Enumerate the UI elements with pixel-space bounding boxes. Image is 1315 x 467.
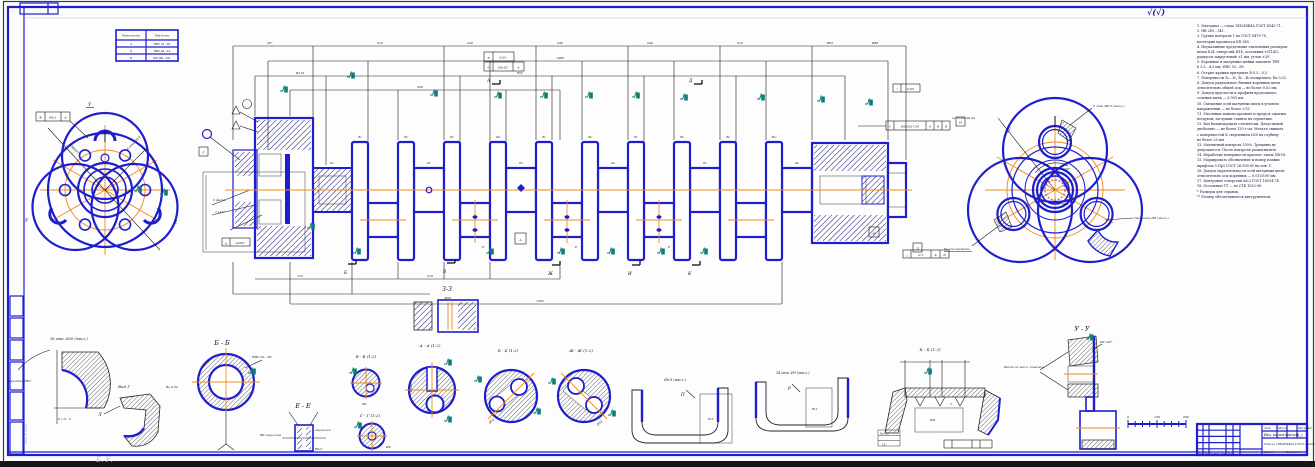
svg-text:210: 210 xyxy=(736,41,743,45)
center-mark-box: А xyxy=(518,238,522,242)
svg-text:⊥: ⊥ xyxy=(906,253,909,257)
section-bb: Б - Б HRC 52…58 Ra 0,32 xyxy=(165,340,272,450)
svg-text:320: 320 xyxy=(417,85,423,89)
svg-text:Б: Б xyxy=(936,124,940,128)
svg-text:Ø88: Ø88 xyxy=(871,40,879,45)
svg-text:Ø9: Ø9 xyxy=(361,401,367,406)
section-kk: К - К (1:2) Ø92 ▽ Ra 1,6 15° xyxy=(878,347,1000,448)
note: эмульсия xyxy=(315,428,331,432)
reference-table: Поверхность Твёрдость А HRC 52…58 Б HRC … xyxy=(116,30,178,61)
corner-stamp-box xyxy=(20,3,58,14)
crankshaft-main-view: 45° 210 240 240 240 210 Ø95 Ø88 1485 Ø11… xyxy=(225,40,975,304)
counterweight-profile-1: Ø6,9 (масл.) R15 П xyxy=(632,377,732,443)
drawing-canvas: √(√) Инв. № подл. Б. У. Поверхность Твёр… xyxy=(0,0,1315,467)
svg-text:Ø0,05: Ø0,05 xyxy=(497,64,507,69)
scale-tick-label: 0 xyxy=(1127,415,1129,419)
svg-text:К: К xyxy=(687,272,692,277)
section-label: А - А (1:2) xyxy=(419,343,441,348)
counterweight-profile-2: 14 отв. Ø9 (масл.) R12 Р xyxy=(756,370,848,431)
svg-text:Б₆: Б₆ xyxy=(794,161,799,165)
section-label: В - В (1:2) xyxy=(355,354,377,359)
weld-symbol: ▽ xyxy=(950,402,953,406)
section-ee: Е - Е Ø9 (керосин) эмульсия R0,5 xyxy=(259,403,331,451)
left-margin-boxes xyxy=(10,296,23,454)
section-label: Ж - Ж (1:2) xyxy=(568,348,593,353)
section-label: К - К (1:2) xyxy=(919,347,941,352)
svg-text:210: 210 xyxy=(376,41,383,45)
svg-text:Ø110: Ø110 xyxy=(295,70,304,75)
section-bb2: Б - Б (1:2) Ø52 xyxy=(474,348,541,425)
gdt-value: 0,063 xyxy=(236,241,245,245)
scale-bar: 0 100 200 xyxy=(1127,415,1189,428)
gdt-frame-flange: ⊕ Ø0,1 А xyxy=(36,112,88,138)
section-aa: А - А (1:2) Ø140 xyxy=(405,343,459,423)
table-cell: HB 269…341 xyxy=(152,56,171,60)
section-label: З-З xyxy=(442,286,452,293)
titleblock-cell: Масштаб xyxy=(1297,426,1312,430)
leader-letter: Л xyxy=(97,413,102,418)
drawing-sheet: √(√) Инв. № подл. Б. У. Поверхность Твёр… xyxy=(0,0,1315,467)
dim-label: Ø80H7 xyxy=(69,143,81,155)
section-label: Б - Б xyxy=(213,340,230,347)
svg-text:В₄: В₄ xyxy=(495,135,500,139)
datum-flag: Д xyxy=(915,247,919,251)
svg-text:В: В xyxy=(442,270,446,275)
svg-text:240: 240 xyxy=(466,41,473,45)
svg-text:И: И xyxy=(627,272,632,277)
datum-flag: И xyxy=(958,121,962,125)
note: Фаски по масл. каналам xyxy=(1004,365,1044,369)
leader-note: Балансировать xyxy=(943,247,970,251)
side-frame-note: Инв. № подл. xyxy=(24,423,28,444)
svg-text:Е: Е xyxy=(481,245,485,249)
svg-text:В₃: В₃ xyxy=(449,135,454,139)
section-zz: З-З Ø20 xyxy=(414,286,478,332)
svg-text:Б₅: Б₅ xyxy=(702,161,707,165)
svg-text:1485: 1485 xyxy=(556,56,564,60)
svg-text:Е: Е xyxy=(667,245,671,249)
svg-text:Д: Д xyxy=(688,79,693,84)
section-label: Г - Г (1:2) xyxy=(359,413,380,418)
section-gg: Г - Г (1:2) Ø9 xyxy=(354,413,391,451)
svg-text:240: 240 xyxy=(646,41,653,45)
leader-note: 2 отв. Ø8,5 (масл.) xyxy=(1092,103,1125,108)
section-label: Б - Б (1:2) xyxy=(497,348,519,353)
svg-text:В₇: В₇ xyxy=(633,135,638,139)
flange-front-view: Ø80H7 6 отв. Ø14 ⊕ Ø0,1 А У У Z xyxy=(25,103,178,255)
gdt-value: Ø0,1 xyxy=(48,114,56,119)
note: Ø9 (керосин) xyxy=(259,432,282,437)
svg-text:R15: R15 xyxy=(707,417,714,421)
datum-flag: Г xyxy=(201,151,205,155)
note: h 1,5…3 xyxy=(58,417,71,421)
section-uu: У - У Фаски по масл. каналам Ø2×45° xyxy=(1004,326,1120,449)
svg-text:В₉: В₉ xyxy=(725,135,730,139)
svg-text:А: А xyxy=(933,253,937,257)
svg-text:Ø9: Ø9 xyxy=(385,444,391,449)
note: Ø2×45° xyxy=(1099,339,1113,344)
table-cell: В xyxy=(129,56,132,60)
svg-text:240: 240 xyxy=(556,41,563,45)
svg-text:В₁: В₁ xyxy=(357,135,362,139)
svg-text:210: 210 xyxy=(426,274,433,278)
svg-text:В₂: В₂ xyxy=(403,135,408,139)
hub-dim: Ø50 xyxy=(1061,201,1069,206)
table-cell: HRC 48…54 xyxy=(153,49,171,53)
crankshaft-body: А xyxy=(225,118,912,260)
svg-text:В: В xyxy=(944,124,948,128)
titleblock-cell: Лит. xyxy=(1263,426,1271,430)
svg-text:В₅: В₅ xyxy=(541,135,546,139)
svg-text:Ø95: Ø95 xyxy=(826,40,834,45)
svg-text:Б: Б xyxy=(942,253,946,257)
view-letter: Z xyxy=(173,221,178,226)
svg-text:⌖: ⌖ xyxy=(889,125,891,129)
svg-text:◠: ◠ xyxy=(896,87,899,91)
leader-letter: Р xyxy=(787,387,791,392)
svg-text:Ø140: Ø140 xyxy=(408,384,413,393)
svg-text:Б₄: Б₄ xyxy=(610,161,615,165)
svg-text:Б: Б xyxy=(343,271,348,276)
crankpin-end-view: R47 120° Ø50 2 отв. Ø8,5 (масл.) Баланси… xyxy=(943,98,1169,262)
section-vv: В - В (1:2) Ø9 xyxy=(349,354,382,406)
section-jj: Ж - Ж (1:2) Ø52 xyxy=(548,348,616,427)
angle-label: 120° xyxy=(1063,167,1071,171)
gdt-note: на длине 100 мм xyxy=(952,116,975,120)
svg-text:Б₂: Б₂ xyxy=(426,161,431,165)
detail-label: 14 отв. Ø9 (масл.) xyxy=(776,370,810,375)
titleblock-cell: Масса xyxy=(1277,426,1287,430)
svg-text:А: А xyxy=(928,124,932,128)
watermark-signature: Б. У. xyxy=(95,456,113,464)
svg-text:≡: ≡ xyxy=(487,56,490,60)
svg-text:А: А xyxy=(516,65,520,69)
section-label: У - У xyxy=(1074,326,1090,333)
svg-text:1265: 1265 xyxy=(536,299,544,303)
svg-text:0,05: 0,05 xyxy=(907,87,914,91)
leader-note: Сверлить Ø8 (масл.) xyxy=(1134,215,1169,220)
svg-text:15°: 15° xyxy=(882,442,887,446)
svg-text:45°: 45° xyxy=(266,41,273,45)
svg-text:125: 125 xyxy=(297,274,303,278)
balloon-mark xyxy=(243,100,252,109)
note: 1×45° xyxy=(215,210,225,214)
detail-label: Ø6,9 (масл.) xyxy=(663,377,687,382)
svg-text:Ø52: Ø52 xyxy=(486,417,495,426)
gdt-symbol: ⊕ xyxy=(39,116,42,120)
part-name: Вал коленчатый xyxy=(1263,432,1299,437)
gdt-frame-inset: ◎ 0,063 xyxy=(222,238,250,246)
scale-tick-label: 200 xyxy=(1182,415,1189,419)
view-letter: У xyxy=(25,219,29,224)
detail-label: 16 отв. Ø20 (масл.) xyxy=(50,336,88,341)
svg-text:855: 855 xyxy=(517,71,523,75)
svg-text:В₆: В₆ xyxy=(587,135,592,139)
gdt-symbol: ◎ xyxy=(225,241,228,245)
section-label: Е - Е xyxy=(294,403,311,410)
dimension-labels-top: 45° 210 240 240 240 210 Ø95 Ø88 1485 Ø11… xyxy=(266,40,878,89)
table-header: Твёрдость xyxy=(155,34,171,38)
svg-text:0,1: 0,1 xyxy=(919,253,924,257)
scale-tick-label: 100 xyxy=(1154,415,1160,419)
sheet-count: Листов 1 xyxy=(1285,450,1300,454)
svg-text:В₁₀: В₁₀ xyxy=(771,135,778,139)
svg-text:0,01: 0,01 xyxy=(500,55,507,59)
technical-requirements: 1. Материал — сталь 18Х2Н4МА ГОСТ 4543-7… xyxy=(1197,24,1304,236)
note: Ra 0,32 xyxy=(165,385,178,389)
note: R0,5 xyxy=(314,447,322,451)
bottom-sections: З-З Ø20 16 отв. Ø20 (масл.) Закалить ТВЧ… xyxy=(7,286,1120,451)
table-header: Поверхность xyxy=(121,34,141,38)
svg-text:Ж: Ж xyxy=(547,272,553,277)
note: HRC 52…58 xyxy=(251,355,271,359)
svg-text:Б₃: Б₃ xyxy=(518,161,523,165)
svg-text:Е: Е xyxy=(574,245,578,249)
dimension-labels-bottom: 125 210 1265 xyxy=(297,274,544,303)
stamp-row: Изм. Лист № докум. Подп. Дата xyxy=(1198,452,1234,455)
note: 3 фаски xyxy=(213,198,226,202)
dimension-lines-bottom xyxy=(233,262,782,304)
sheet-number: Лист 1 xyxy=(1263,450,1275,454)
svg-text:R12: R12 xyxy=(811,407,818,411)
detail-label: Вид Г xyxy=(117,384,130,389)
note: Закалить ТВЧ xyxy=(7,379,31,383)
svg-text:Ø92: Ø92 xyxy=(929,417,936,422)
title-block: Лит. Масса Масштаб 1:2 Вал коленчатый Ст… xyxy=(1197,424,1315,455)
gdt-datum: А xyxy=(63,115,67,119)
svg-text:А: А xyxy=(486,79,490,84)
svg-text:Б₁: Б₁ xyxy=(329,161,334,165)
table-cell: А xyxy=(129,42,132,46)
table-cell: HRC 52…58 xyxy=(153,42,171,46)
svg-text:Ø0,032 СМ: Ø0,032 СМ xyxy=(900,123,920,128)
table-cell: Б xyxy=(129,49,132,53)
material: Сталь 18Х2Н4МА ГОСТ 4543-71 xyxy=(1264,442,1315,446)
general-roughness-mark: √(√) xyxy=(1147,7,1165,17)
leader-letter: П xyxy=(680,393,685,398)
svg-text:Ra 1,6: Ra 1,6 xyxy=(879,432,889,436)
svg-text:В₈: В₈ xyxy=(679,135,684,139)
